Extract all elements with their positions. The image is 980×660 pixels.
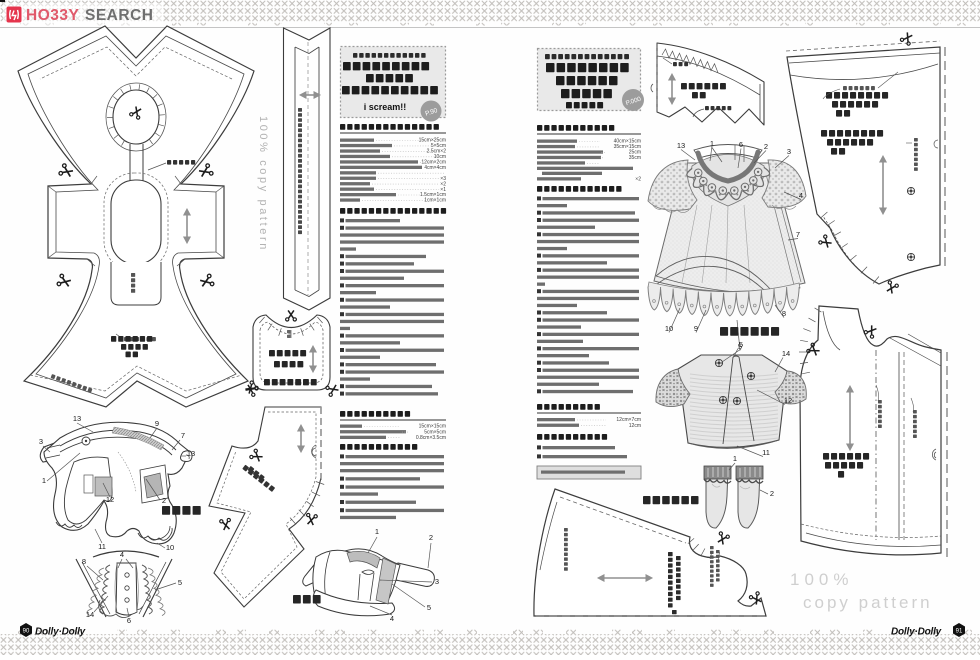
svg-text:3: 3	[435, 577, 439, 586]
svg-text:1: 1	[710, 139, 714, 148]
svg-text:11: 11	[762, 448, 770, 457]
svg-text:×2: ×2	[635, 176, 641, 182]
svg-text:11: 11	[98, 542, 106, 551]
svg-text:SEARCH: SEARCH	[85, 7, 153, 24]
svg-text:1: 1	[42, 476, 46, 485]
svg-text:3: 3	[787, 147, 791, 156]
svg-text:100%: 100%	[790, 570, 853, 589]
svg-text:8: 8	[82, 557, 86, 566]
svg-text:0.8cm×3.5cm: 0.8cm×3.5cm	[416, 435, 446, 441]
svg-text:2: 2	[162, 496, 166, 505]
svg-text:HO33Y: HO33Y	[26, 7, 79, 24]
svg-text:12: 12	[784, 396, 792, 405]
svg-text:2: 2	[770, 489, 774, 498]
svg-text:2: 2	[429, 533, 433, 542]
svg-text:7: 7	[181, 431, 185, 440]
svg-text:35cm: 35cm	[629, 155, 641, 161]
svg-text:14: 14	[782, 349, 790, 358]
svg-text:copy pattern: copy pattern	[803, 593, 933, 612]
svg-text:6: 6	[127, 616, 131, 625]
svg-text:14: 14	[86, 610, 94, 619]
svg-text:10: 10	[166, 543, 174, 552]
svg-text:13: 13	[677, 141, 685, 150]
svg-text:13: 13	[73, 414, 81, 423]
svg-text:91: 91	[956, 629, 963, 635]
svg-text:4: 4	[390, 614, 394, 623]
svg-text:2: 2	[764, 142, 768, 151]
svg-text:13: 13	[187, 449, 195, 458]
svg-text:100% copy pattern: 100% copy pattern	[257, 116, 269, 252]
svg-text:6: 6	[739, 140, 743, 149]
svg-text:4: 4	[120, 550, 124, 559]
svg-text:Dolly·Dolly: Dolly·Dolly	[35, 627, 86, 638]
svg-text:5: 5	[427, 603, 431, 612]
svg-text:5: 5	[178, 578, 182, 587]
svg-text:90: 90	[23, 629, 30, 635]
svg-text:8: 8	[782, 309, 786, 318]
svg-text:1: 1	[733, 454, 737, 463]
svg-text:7: 7	[796, 230, 800, 239]
svg-text:5: 5	[739, 340, 743, 349]
svg-text:1: 1	[375, 527, 379, 536]
svg-text:9: 9	[155, 419, 159, 428]
svg-text:12cm: 12cm	[629, 423, 641, 429]
svg-text:3: 3	[39, 437, 43, 446]
svg-text:i scream!!: i scream!!	[364, 102, 407, 112]
svg-text:Dolly·Dolly: Dolly·Dolly	[891, 627, 942, 638]
